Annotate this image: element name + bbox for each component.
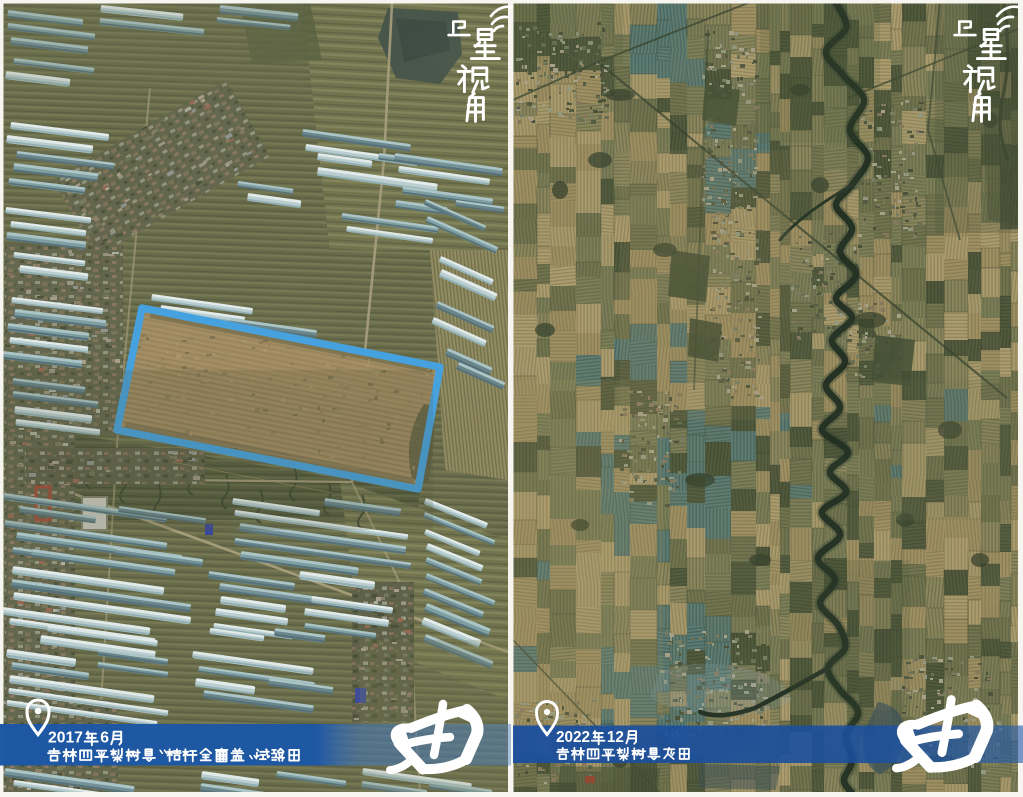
svg-text:2017: 2017 [48, 730, 83, 747]
svg-text:12: 12 [607, 729, 624, 746]
svg-text:2022: 2022 [556, 729, 590, 746]
svg-text:6: 6 [100, 730, 109, 747]
